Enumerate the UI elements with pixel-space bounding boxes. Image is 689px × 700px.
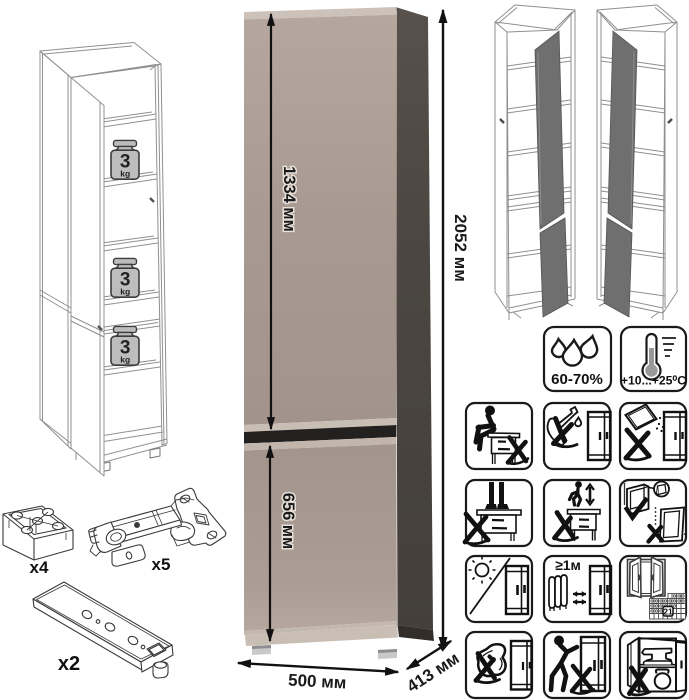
svg-text:500 мм: 500 мм [288, 670, 347, 692]
svg-text:x2: x2 [58, 653, 80, 675]
svg-text:656 мм: 656 мм [279, 493, 297, 550]
svg-text:+10...+25⁰С: +10...+25⁰С [621, 374, 686, 388]
svg-text:x4: x4 [30, 558, 49, 577]
svg-text:x5: x5 [152, 555, 171, 574]
svg-text:1334 мм: 1334 мм [280, 166, 298, 232]
svg-text:2052 мм: 2052 мм [451, 214, 470, 282]
svg-text:413 мм: 413 мм [403, 649, 462, 697]
svg-text:60-70%: 60-70% [551, 371, 603, 388]
svg-text:≥1м: ≥1м [555, 557, 581, 573]
svg-text:21: 21 [663, 607, 673, 617]
